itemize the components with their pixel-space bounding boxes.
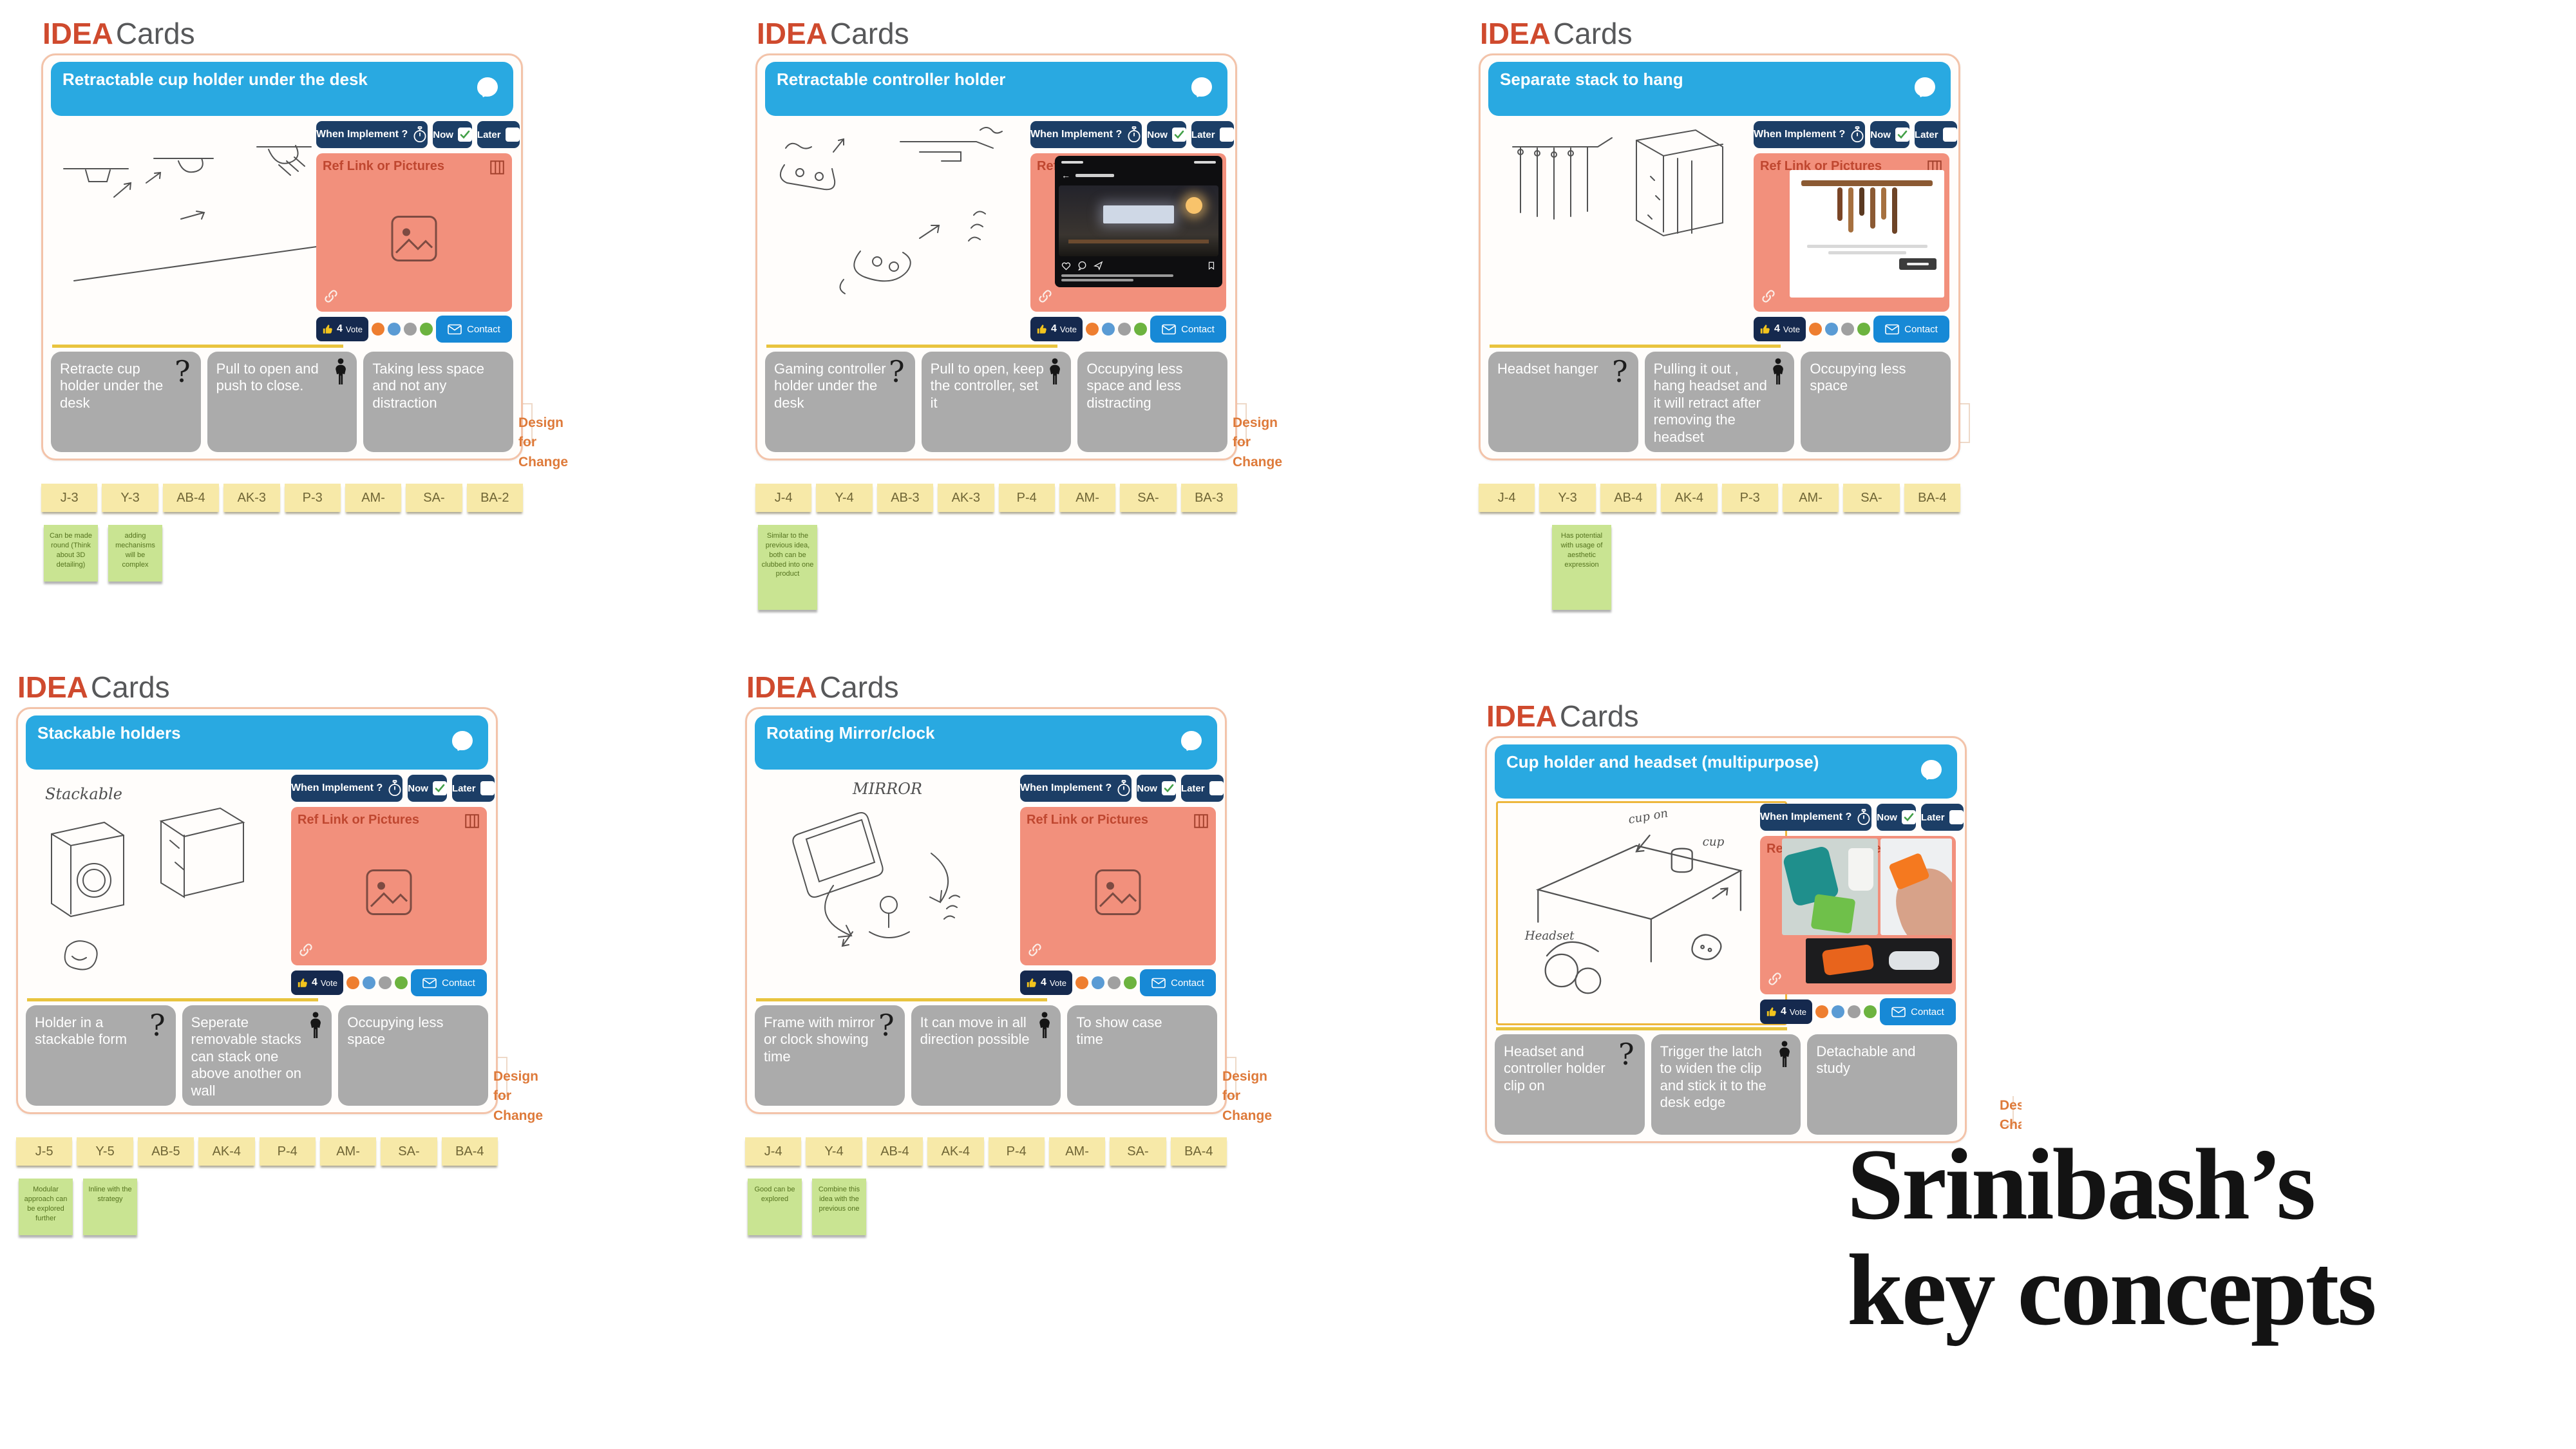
initials-tag-row: J-3 Y-3 AB-4 AK-3 P-3 AM- SA- BA-2 — [41, 484, 523, 512]
now-button[interactable]: Now — [1137, 775, 1176, 802]
initials-tag[interactable]: AK-4 — [927, 1137, 983, 1166]
color-dot-blue[interactable] — [388, 323, 401, 336]
initials-tag[interactable]: AB-5 — [138, 1137, 194, 1166]
card-title: Separate stack to hang — [1500, 70, 1683, 89]
contact-label: Contact — [442, 978, 475, 989]
idea-card-group-4: IDEACards Stackable holders Stackable — [16, 670, 512, 1235]
stopwatch-icon — [387, 780, 402, 797]
vote-button[interactable]: 4 Vote — [316, 317, 368, 341]
benefit-box[interactable]: Occupying less space and less distractin… — [1077, 352, 1227, 452]
now-checkbox[interactable] — [1895, 128, 1909, 142]
contact-button[interactable]: Contact — [1140, 969, 1216, 996]
how-box[interactable]: Seperate removable stacks can stack one … — [182, 1005, 332, 1106]
vote-button[interactable]: 4 Vote — [1030, 317, 1083, 341]
question-mark-icon: ? — [1618, 1037, 1634, 1072]
when-implement-button[interactable]: When Implement ? — [1030, 121, 1142, 148]
controller-holder-sketch — [766, 118, 1057, 343]
sticky-note[interactable]: Inline with the strategy — [83, 1179, 137, 1235]
initials-tag[interactable]: AB-4 — [867, 1137, 923, 1166]
initials-tag[interactable]: J-4 — [745, 1137, 801, 1166]
initials-tag[interactable]: AM- — [1059, 484, 1115, 512]
ref-link-panel[interactable]: Ref Link or Pictures — [316, 153, 512, 312]
color-dot-orange[interactable] — [1815, 1005, 1828, 1018]
later-button[interactable]: Later — [1191, 121, 1234, 148]
what-box[interactable]: Gaming controller holder under the desk … — [765, 352, 915, 452]
now-label: Now — [1137, 783, 1157, 794]
link-icon[interactable] — [1760, 288, 1777, 305]
sticky-note[interactable]: adding mechanisms will be complex — [108, 525, 162, 582]
idea-label: IDEA — [1486, 699, 1557, 733]
later-checkbox[interactable] — [1943, 128, 1957, 142]
sticky-note[interactable]: Can be made round (Think about 3D detail… — [44, 525, 98, 582]
link-icon[interactable] — [323, 288, 339, 305]
envelope-icon — [1885, 324, 1899, 335]
svg-text:MIRROR: MIRROR — [852, 780, 922, 798]
gray-box-row: Retracte cup holder under the desk ? Pul… — [51, 352, 513, 452]
what-box-text: Headset and controller holder clip on — [1504, 1043, 1636, 1094]
how-box[interactable]: Pull to open, keep the controller, set i… — [922, 352, 1072, 452]
sketch-area[interactable] — [1490, 118, 1781, 343]
when-implement-button[interactable]: When Implement ? — [1760, 804, 1871, 831]
sticky-note[interactable]: Good can be explored — [748, 1179, 802, 1235]
hanging-pegs — [1796, 187, 1938, 241]
speech-bubble-icon — [1915, 77, 1935, 97]
vote-row: 4 Vote Contact — [316, 316, 512, 343]
cards-label: Cards — [91, 670, 170, 704]
vote-row: 4 Vote Contact — [291, 969, 487, 996]
vote-row: 4 Vote Contact — [1754, 316, 1949, 343]
initials-tag[interactable]: SA- — [1120, 484, 1176, 512]
color-dot-orange[interactable] — [1809, 323, 1822, 336]
color-dot-green[interactable] — [1857, 323, 1870, 336]
thumbs-up-icon — [1766, 1006, 1777, 1018]
sketch-area[interactable] — [766, 118, 1057, 343]
vote-label: Vote — [1050, 978, 1066, 988]
initials-tag[interactable]: Y-3 — [102, 484, 158, 512]
how-box[interactable]: It can move in all direction possible — [911, 1005, 1061, 1106]
idea-cards-heading: IDEACards — [1486, 699, 1981, 734]
idea-label: IDEA — [43, 17, 113, 50]
idea-card: Separate stack to hang When Implement ? — [1479, 53, 1960, 460]
when-implement-button[interactable]: When Implement ? — [316, 121, 428, 148]
initials-tag[interactable]: AM- — [320, 1137, 376, 1166]
now-checkbox[interactable] — [458, 128, 472, 142]
vote-count: 4 — [1774, 323, 1780, 335]
vote-button[interactable]: 4 Vote — [291, 971, 343, 995]
later-button[interactable]: Later — [477, 121, 520, 148]
card-title-bar[interactable]: Separate stack to hang — [1488, 62, 1951, 116]
card-title-bar[interactable]: Retractable cup holder under the desk — [51, 62, 513, 116]
initials-tag[interactable]: AK-3 — [938, 484, 994, 512]
share-icon — [1094, 261, 1103, 270]
initials-tag-row: J-4 Y-4 AB-3 AK-3 P-4 AM- SA- BA-3 — [755, 484, 1237, 512]
initials-tag[interactable]: Y-5 — [77, 1137, 133, 1166]
how-box-text: Pulling it out , hang headset and it wil… — [1654, 361, 1786, 446]
design-for-change-label: Design forChange — [1233, 413, 1292, 472]
gray-box-row: Headset and controller holder clip on ? … — [1495, 1034, 1957, 1135]
initials-tag[interactable]: J-4 — [1479, 484, 1535, 512]
vote-button[interactable]: 4 Vote — [1020, 971, 1072, 995]
color-dot-green[interactable] — [395, 976, 408, 989]
check-icon — [1897, 130, 1908, 139]
later-checkbox[interactable] — [1220, 128, 1234, 142]
initials-tag[interactable]: SA- — [1110, 1137, 1166, 1166]
initials-tag[interactable]: BA-2 — [467, 484, 523, 512]
initials-tag[interactable]: AB-4 — [1600, 484, 1656, 512]
when-implement-button[interactable]: When Implement ? — [1754, 121, 1865, 148]
shop-button[interactable] — [1899, 258, 1937, 270]
benefit-box-text: Taking less space and not any distractio… — [372, 361, 504, 412]
color-dot-orange[interactable] — [346, 976, 359, 989]
ref-link-panel[interactable]: Ref Link or Pictures — [1760, 836, 1956, 994]
initials-tag[interactable]: AM- — [1783, 484, 1839, 512]
design-for-change-label: Design forChange — [493, 1067, 553, 1126]
vote-label: Vote — [321, 978, 337, 988]
color-dot-green[interactable] — [1124, 976, 1137, 989]
vote-label: Vote — [1783, 325, 1800, 334]
color-dot-gray[interactable] — [1841, 323, 1854, 336]
later-label: Later — [452, 783, 476, 794]
speech-bubble-icon — [1191, 77, 1212, 97]
initials-tag[interactable]: BA-4 — [442, 1137, 498, 1166]
idea-cards-heading: IDEACards — [1480, 16, 1975, 51]
when-implement-label: When Implement ? — [1020, 782, 1112, 794]
how-box-text: It can move in all direction possible — [920, 1014, 1052, 1048]
card-title-bar[interactable]: Retractable controller holder — [765, 62, 1227, 116]
vote-label: Vote — [1790, 1007, 1806, 1017]
how-box-text: Seperate removable stacks can stack one … — [191, 1014, 323, 1099]
now-button[interactable]: Now — [433, 121, 472, 148]
speech-bubble-icon — [1921, 760, 1942, 779]
gray-box-row: Frame with mirror or clock showing time … — [755, 1005, 1217, 1106]
initials-tag[interactable]: Y-3 — [1539, 484, 1595, 512]
check-icon — [1904, 813, 1914, 822]
benefit-box[interactable]: Taking less space and not any distractio… — [363, 352, 513, 452]
idea-cards-heading: IDEACards — [746, 670, 1241, 705]
benefit-box[interactable]: Detachable and study — [1807, 1034, 1957, 1135]
link-icon[interactable] — [1766, 971, 1783, 987]
benefit-box[interactable]: Occupying less space — [338, 1005, 488, 1106]
thumbs-up-icon — [1759, 323, 1771, 335]
when-implement-button[interactable]: When Implement ? — [1020, 775, 1132, 802]
svg-text:Stackable: Stackable — [45, 785, 122, 803]
vote-row: 4 Vote Contact — [1020, 969, 1216, 996]
initials-tag[interactable]: BA-4 — [1171, 1137, 1227, 1166]
initials-tag[interactable]: P-4 — [989, 1137, 1045, 1166]
benefit-box-text: Occupying less space and less distractin… — [1086, 361, 1218, 412]
sticky-note[interactable]: Modular approach can be explored further — [19, 1179, 73, 1235]
initials-tag-row: J-5 Y-5 AB-5 AK-4 P-4 AM- SA- BA-4 — [16, 1137, 498, 1166]
vote-count: 4 — [337, 323, 343, 335]
initials-tag[interactable]: AB-4 — [163, 484, 219, 512]
initials-tag[interactable]: J-5 — [16, 1137, 72, 1166]
how-box-text: Pull to open and push to close. — [216, 361, 348, 395]
now-button[interactable]: Now — [408, 775, 447, 802]
stopwatch-icon — [1850, 126, 1865, 143]
implement-controls: When Implement ? Now Later — [291, 775, 487, 802]
stopwatch-icon — [1116, 780, 1132, 797]
initials-tag[interactable]: Y-4 — [806, 1137, 862, 1166]
card-title-bar[interactable]: Cup holder and headset (multipurpose) — [1495, 744, 1957, 799]
initials-tag[interactable]: AK-3 — [223, 484, 279, 512]
initials-tag[interactable]: AM- — [1049, 1137, 1105, 1166]
divider — [766, 345, 1057, 348]
product-caption-lines — [1796, 245, 1938, 254]
now-checkbox[interactable] — [433, 781, 447, 795]
thumbs-up-icon — [1026, 977, 1037, 989]
cards-label: Cards — [820, 670, 899, 704]
benefit-box-text: Detachable and study — [1816, 1043, 1948, 1077]
idea-card-group-5: IDEACards Rotating Mirror/clock MIRROR — [745, 670, 1241, 1235]
initials-tag[interactable]: AM- — [345, 484, 401, 512]
page-title-line1: Srinibash’s — [1847, 1132, 2375, 1238]
benefit-box[interactable]: Occupying less space — [1801, 352, 1951, 452]
color-dot-gray[interactable] — [404, 323, 417, 336]
initials-tag[interactable]: AB-3 — [877, 484, 933, 512]
vote-row: 4 Vote Contact — [1760, 998, 1956, 1025]
color-dot-gray[interactable] — [1118, 323, 1131, 336]
color-dot-blue[interactable] — [1102, 323, 1115, 336]
initials-tag[interactable]: P-3 — [285, 484, 341, 512]
contact-label: Contact — [1181, 324, 1215, 335]
idea-label: IDEA — [17, 670, 88, 704]
color-dot-blue[interactable] — [1825, 323, 1838, 336]
link-icon[interactable] — [1037, 288, 1054, 305]
contact-button[interactable]: Contact — [411, 969, 487, 996]
card-title: Retractable controller holder — [777, 70, 1005, 89]
what-box-text: Holder in a stackable form — [35, 1014, 167, 1048]
now-checkbox[interactable] — [1162, 781, 1176, 795]
stopwatch-icon — [1126, 126, 1142, 143]
envelope-icon — [422, 978, 437, 989]
color-dot-blue[interactable] — [1832, 1005, 1844, 1018]
color-dot-gray[interactable] — [1848, 1005, 1861, 1018]
speech-bubble-icon — [452, 731, 473, 750]
initials-tag[interactable]: AK-4 — [198, 1137, 254, 1166]
later-label: Later — [1191, 129, 1215, 140]
initials-tag[interactable]: P-3 — [1722, 484, 1778, 512]
design-for-change-label: Design forChange — [1222, 1067, 1282, 1126]
contact-button[interactable]: Contact — [1873, 316, 1949, 343]
color-dot-orange[interactable] — [1075, 976, 1088, 989]
implement-controls: When Implement ? Now Later — [1754, 121, 1949, 148]
ref-panel-title: Ref Link or Pictures — [298, 813, 419, 828]
cards-label: Cards — [830, 17, 909, 50]
how-box-text: Pull to open, keep the controller, set i… — [931, 361, 1063, 412]
divider — [1496, 1027, 1787, 1030]
ref-link-panel[interactable]: Ref Link or Pictures — [1020, 807, 1216, 965]
person-icon — [1776, 1041, 1793, 1068]
image-placeholder-icon — [387, 212, 441, 266]
later-checkbox[interactable] — [1209, 781, 1224, 795]
how-box[interactable]: Trigger the latch to widen the clip and … — [1651, 1034, 1801, 1135]
stopwatch-icon — [1856, 809, 1871, 826]
when-implement-button[interactable]: When Implement ? — [291, 775, 402, 802]
how-box[interactable]: Pull to open and push to close. — [207, 352, 357, 452]
now-checkbox[interactable] — [1172, 128, 1186, 142]
now-label: Now — [1877, 812, 1897, 823]
what-box[interactable]: Headset and controller holder clip on ? — [1495, 1034, 1645, 1135]
cards-label: Cards — [1553, 17, 1633, 50]
what-box-text: Retracte cup holder under the desk — [60, 361, 192, 412]
idea-card-group-2: IDEACards Retractable controller holder — [755, 16, 1251, 610]
initials-tag[interactable]: J-4 — [755, 484, 811, 512]
ref-link-panel[interactable]: Ref Link or Pictures ← — [1030, 153, 1226, 312]
now-checkbox[interactable] — [1902, 810, 1916, 824]
later-checkbox[interactable] — [1949, 810, 1964, 824]
gallery-icon — [489, 159, 506, 176]
later-button[interactable]: Later — [452, 775, 495, 802]
page-title: Srinibash’s key concepts — [1847, 1132, 2375, 1344]
gallery-icon — [464, 813, 480, 829]
sketch-area-selected[interactable]: cup on Headset cup — [1496, 801, 1787, 1025]
svg-text:cup: cup — [1703, 835, 1725, 849]
vote-label: Vote — [346, 325, 363, 334]
ref-panel-title: Ref Link or Pictures — [1027, 813, 1148, 828]
divider — [1490, 345, 1781, 348]
benefit-box-text: Occupying less space — [347, 1014, 479, 1048]
vote-count: 4 — [1781, 1006, 1786, 1018]
initials-tag[interactable]: J-3 — [41, 484, 97, 512]
contact-label: Contact — [1911, 1007, 1944, 1018]
contact-label: Contact — [1171, 978, 1204, 989]
question-mark-icon: ? — [149, 1008, 166, 1043]
contact-button[interactable]: Contact — [436, 316, 512, 343]
ref-link-panel[interactable]: Ref Link or Pictures — [291, 807, 487, 965]
vote-count: 4 — [1041, 977, 1046, 989]
implement-controls: When Implement ? Now Later — [1760, 804, 1956, 831]
later-button[interactable]: Later — [1915, 121, 1957, 148]
idea-cards-heading: IDEACards — [43, 16, 537, 51]
cards-label: Cards — [116, 17, 195, 50]
reference-photo-collage — [1782, 838, 1952, 990]
sketch-area[interactable] — [52, 118, 343, 343]
person-icon — [332, 358, 349, 385]
idea-label: IDEA — [746, 670, 817, 704]
design-for-change-label: Design forChange — [518, 413, 578, 472]
initials-tag[interactable]: Y-4 — [816, 484, 872, 512]
gray-box-row: Holder in a stackable form ? Seperate re… — [26, 1005, 488, 1106]
now-button[interactable]: Now — [1877, 804, 1916, 831]
later-checkbox[interactable] — [506, 128, 520, 142]
contact-button[interactable]: Contact — [1150, 316, 1226, 343]
image-placeholder-icon — [362, 866, 416, 920]
card-title: Stackable holders — [37, 723, 181, 743]
svg-text:cup on: cup on — [1627, 806, 1669, 826]
link-icon[interactable] — [1027, 942, 1043, 958]
check-icon — [1164, 784, 1174, 793]
person-icon — [1036, 1012, 1053, 1039]
initials-tag[interactable]: AK-4 — [1661, 484, 1717, 512]
what-box[interactable]: Frame with mirror or clock showing time … — [755, 1005, 905, 1106]
contact-label: Contact — [467, 324, 500, 335]
color-dot-gray[interactable] — [1108, 976, 1121, 989]
contact-button[interactable]: Contact — [1880, 998, 1956, 1025]
vote-count: 4 — [1051, 323, 1057, 335]
sketch-area[interactable]: Stackable — [27, 772, 318, 996]
idea-card: Stackable holders Stackable W — [16, 707, 498, 1114]
heart-icon — [1061, 261, 1071, 270]
check-icon — [460, 130, 470, 139]
initials-tag-row: J-4 Y-3 AB-4 AK-4 P-3 AM- SA- BA-4 — [1479, 484, 1960, 512]
now-label: Now — [408, 783, 428, 794]
when-implement-label: When Implement ? — [316, 129, 408, 140]
what-box[interactable]: Holder in a stackable form ? — [26, 1005, 176, 1106]
what-box[interactable]: Headset hanger ? — [1488, 352, 1638, 452]
later-button[interactable]: Later — [1181, 775, 1224, 802]
sticky-note[interactable]: Combine this idea with the previous one — [812, 1179, 866, 1235]
color-dot-green[interactable] — [1134, 323, 1147, 336]
sticky-note[interactable]: Has potential with usage of aesthetic ex… — [1552, 525, 1611, 610]
divider — [756, 998, 1047, 1001]
controller-clip-photo — [1806, 938, 1952, 983]
benefit-box[interactable]: To show case time — [1067, 1005, 1217, 1106]
initials-tag[interactable]: BA-4 — [1904, 484, 1960, 512]
initials-tag[interactable]: P-4 — [999, 484, 1055, 512]
initials-tag[interactable]: P-4 — [260, 1137, 316, 1166]
initials-tag[interactable]: SA- — [1843, 484, 1899, 512]
initials-tag[interactable]: SA- — [381, 1137, 437, 1166]
later-label: Later — [1181, 783, 1205, 794]
vote-button[interactable]: 4 Vote — [1760, 999, 1812, 1024]
vote-button[interactable]: 4 Vote — [1754, 317, 1806, 341]
benefit-box-text: To show case time — [1076, 1014, 1208, 1048]
now-button[interactable]: Now — [1147, 121, 1186, 148]
idea-label: IDEA — [757, 17, 828, 50]
desk-setup-photo — [1059, 185, 1218, 256]
hand-with-clip-photo — [1880, 838, 1952, 935]
card-title-bar[interactable]: Rotating Mirror/clock — [755, 715, 1217, 770]
sticky-notes: Can be made round (Think about 3D detail… — [44, 525, 537, 582]
idea-cards-heading: IDEACards — [757, 16, 1251, 51]
later-button[interactable]: Later — [1921, 804, 1964, 831]
color-dot-green[interactable] — [1864, 1005, 1877, 1018]
how-box[interactable]: Pulling it out , hang headset and it wil… — [1645, 352, 1795, 452]
ref-link-panel[interactable]: Ref Link or Pictures — [1754, 153, 1949, 312]
sticky-note[interactable]: Similar to the previous idea, both can b… — [758, 525, 817, 610]
color-dot-blue[interactable] — [363, 976, 375, 989]
sketch-area[interactable]: MIRROR — [756, 772, 1047, 996]
later-checkbox[interactable] — [480, 781, 495, 795]
svg-text:Headset: Headset — [1524, 929, 1575, 943]
vote-count: 4 — [312, 977, 317, 989]
what-box-text: Frame with mirror or clock showing time — [764, 1014, 896, 1065]
ref-panel-title: Ref Link or Pictures — [323, 159, 444, 174]
implement-controls: When Implement ? Now Later — [316, 121, 512, 148]
card-title-bar[interactable]: Stackable holders — [26, 715, 488, 770]
what-box[interactable]: Retracte cup holder under the desk ? — [51, 352, 201, 452]
idea-card-group-1: IDEACards Retractable cup holder under t… — [41, 16, 537, 582]
color-dot-blue[interactable] — [1092, 976, 1104, 989]
color-dot-orange[interactable] — [1086, 323, 1099, 336]
when-implement-label: When Implement ? — [1030, 129, 1122, 140]
color-dot-orange[interactable] — [372, 323, 384, 336]
cup-holder-sketch — [52, 118, 343, 343]
idea-card: Retractable controller holder — [755, 53, 1237, 460]
color-dot-gray[interactable] — [379, 976, 392, 989]
question-mark-icon: ? — [175, 354, 191, 390]
multipurpose-holder-sketch: cup on Headset cup — [1498, 803, 1785, 1023]
now-label: Now — [1147, 129, 1168, 140]
question-mark-icon: ? — [878, 1008, 895, 1043]
now-button[interactable]: Now — [1870, 121, 1909, 148]
link-icon[interactable] — [298, 942, 314, 958]
idea-label: IDEA — [1480, 17, 1551, 50]
initials-tag[interactable]: SA- — [406, 484, 462, 512]
initials-tag[interactable]: BA-3 — [1181, 484, 1237, 512]
divider — [27, 998, 318, 1001]
color-dot-green[interactable] — [420, 323, 433, 336]
